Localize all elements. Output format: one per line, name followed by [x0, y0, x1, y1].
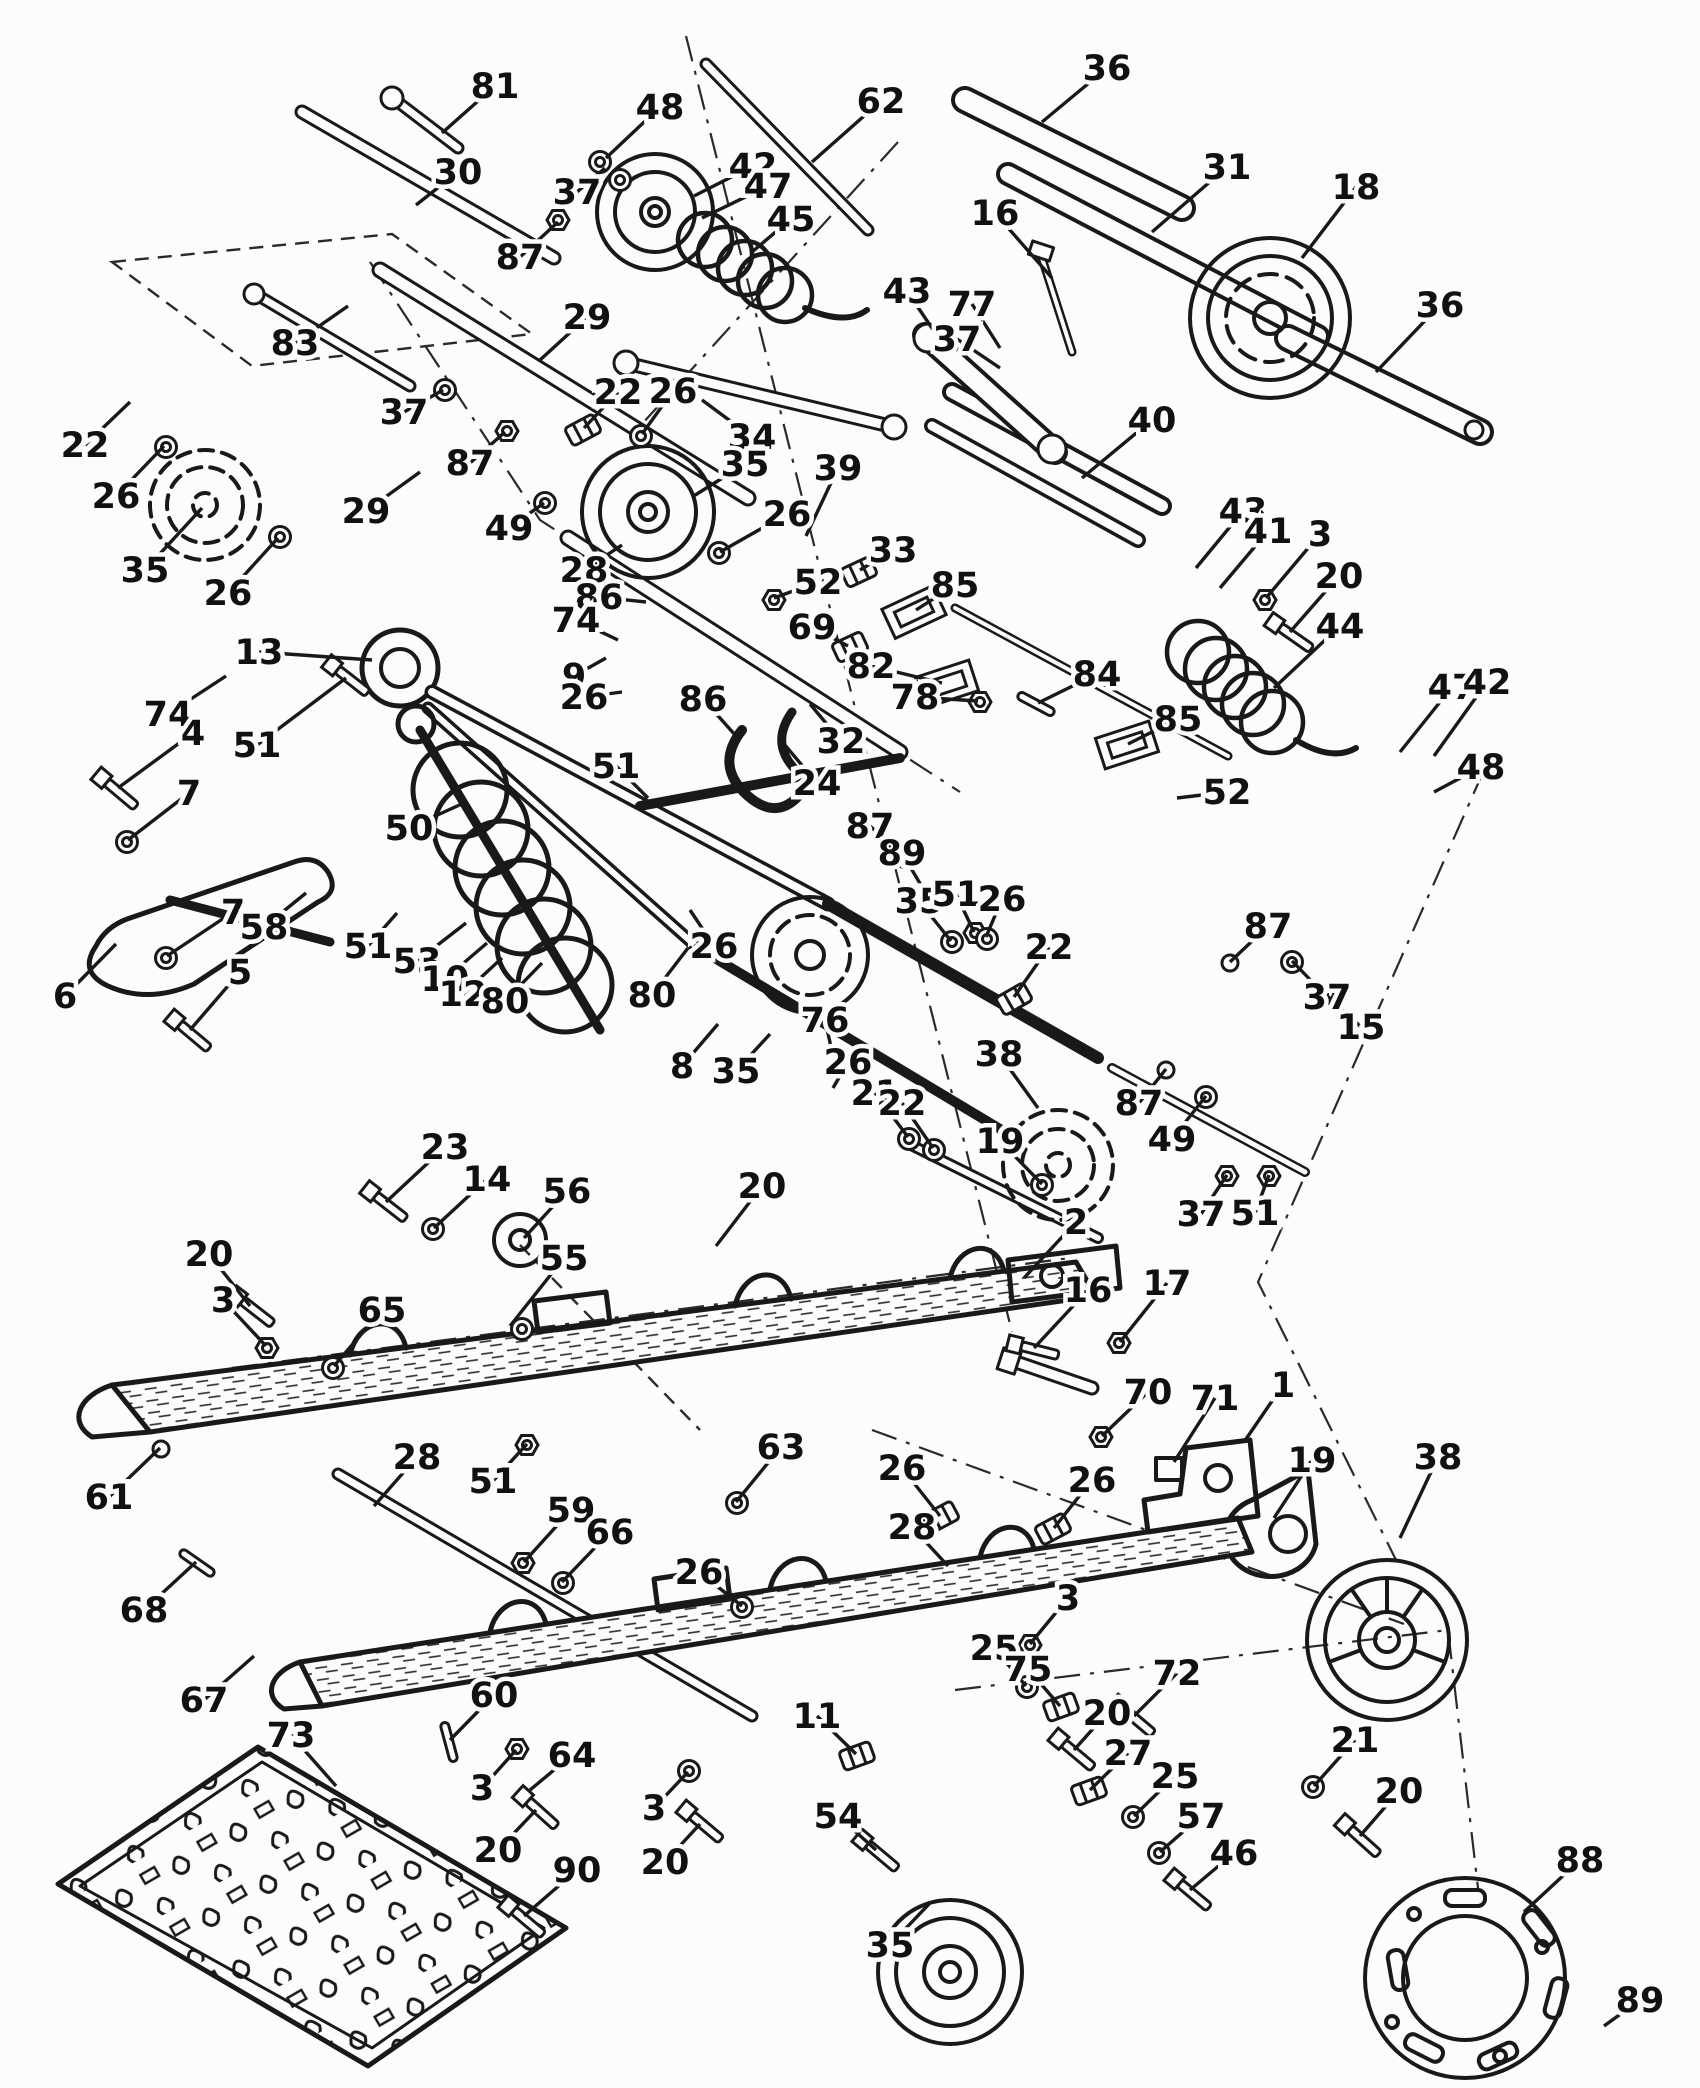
scanned-parts-page: 8148303742474562363118163643773787832940… [0, 0, 1700, 2088]
part-label-43: 43 [883, 272, 932, 312]
bushing-icon [564, 414, 602, 447]
part-label-45: 45 [767, 200, 816, 240]
part-label-26: 26 [649, 372, 698, 412]
part-label-76: 76 [801, 1001, 850, 1041]
part-label-37: 37 [553, 173, 602, 213]
part-label-19: 19 [976, 1122, 1025, 1162]
part-label-3: 3 [642, 1789, 666, 1829]
part-label-48: 48 [636, 88, 685, 128]
part-label-37: 37 [380, 393, 429, 433]
part-label-42: 42 [1463, 663, 1512, 703]
part-label-82: 82 [847, 647, 896, 687]
rod-83-icon [244, 284, 410, 386]
exploded-parts-diagram: 8148303742474562363118163643773787832940… [0, 0, 1700, 2088]
part-label-84: 84 [1073, 655, 1122, 695]
pin-icon [1016, 691, 1055, 717]
bottom-wheel-35-icon [878, 1900, 1022, 2044]
bolt-icon [91, 767, 141, 813]
part-label-11: 11 [793, 1697, 842, 1737]
washer-icon [156, 437, 177, 458]
part-label-89: 89 [878, 834, 927, 874]
part-label-54: 54 [814, 1797, 863, 1837]
part-label-51: 51 [932, 875, 981, 915]
washer-icon [631, 426, 652, 447]
part-label-44: 44 [1316, 607, 1365, 647]
part-label-35: 35 [721, 445, 770, 485]
part-label-35: 35 [121, 551, 170, 591]
part-label-38: 38 [975, 1035, 1024, 1075]
part-label-83: 83 [271, 324, 320, 364]
part-label-20: 20 [1083, 1694, 1132, 1734]
part-label-49: 49 [485, 509, 534, 549]
part-label-6: 6 [53, 977, 77, 1017]
part-label-88: 88 [1556, 1841, 1605, 1881]
part-label-28: 28 [393, 1438, 442, 1478]
part-label-20: 20 [1375, 1772, 1424, 1812]
part-label-55: 55 [540, 1239, 589, 1279]
part-label-26: 26 [1068, 1461, 1117, 1501]
wheel-parts [150, 154, 1569, 2078]
part-label-18: 18 [1332, 168, 1381, 208]
bearing-flange-88-icon [1365, 1878, 1569, 2078]
part-label-58: 58 [240, 908, 289, 948]
part-label-20: 20 [1315, 557, 1364, 597]
part-label-70: 70 [1124, 1373, 1173, 1413]
pin-icon [440, 1722, 458, 1763]
part-label-65: 65 [358, 1291, 407, 1331]
part-label-4: 4 [181, 714, 205, 754]
part-label-87: 87 [496, 238, 545, 278]
bushing-icon [1043, 1692, 1080, 1722]
part-label-90: 90 [553, 1851, 602, 1891]
part-label-26: 26 [763, 495, 812, 535]
part-label-26: 26 [675, 1553, 724, 1593]
part-label-37: 37 [933, 320, 982, 360]
part-label-21: 21 [1331, 1721, 1380, 1761]
part-label-67: 67 [180, 1681, 229, 1721]
part-label-14: 14 [463, 1160, 512, 1200]
part-label-69: 69 [788, 608, 837, 648]
tube-36-upper-icon [965, 100, 1182, 208]
part-label-39: 39 [814, 449, 863, 489]
tube-36-lower-icon [1288, 338, 1483, 439]
part-label-29: 29 [563, 298, 612, 338]
part-label-85: 85 [1154, 700, 1203, 740]
bolt-icon [1334, 1814, 1383, 1861]
nut-icon [256, 1339, 278, 1358]
idler-wheel-35-mid-icon [752, 897, 868, 1013]
rear-idler-38-icon [1307, 1560, 1467, 1720]
part-label-85: 85 [931, 566, 980, 606]
bolt-icon [1048, 1728, 1098, 1774]
washer-icon [924, 1140, 945, 1161]
part-label-52: 52 [794, 563, 843, 603]
part-label-20: 20 [641, 1843, 690, 1883]
part-label-22: 22 [1025, 928, 1074, 968]
part-label-49: 49 [1148, 1120, 1197, 1160]
bolt-icon [1264, 613, 1316, 656]
part-label-22: 22 [878, 1084, 927, 1124]
part-label-87: 87 [1115, 1084, 1164, 1124]
part-label-27: 27 [1104, 1734, 1153, 1774]
part-label-33: 33 [869, 531, 918, 571]
bolt-icon [164, 1009, 214, 1055]
part-label-24: 24 [793, 764, 842, 804]
part-label-19: 19 [1288, 1441, 1337, 1481]
nut-icon [1108, 1334, 1130, 1353]
bushing-icon [995, 982, 1033, 1015]
part-label-41: 41 [1244, 512, 1293, 552]
part-label-3: 3 [470, 1769, 494, 1809]
part-label-20: 20 [185, 1235, 234, 1275]
part-label-5: 5 [228, 953, 252, 993]
part-label-1: 1 [1271, 1366, 1295, 1406]
part-label-78: 78 [891, 678, 940, 718]
part-label-80: 80 [628, 976, 677, 1016]
part-label-62: 62 [857, 82, 906, 122]
part-label-3: 3 [1056, 1579, 1080, 1619]
part-label-31: 31 [1203, 148, 1252, 188]
part-label-37: 37 [1177, 1195, 1226, 1235]
part-label-16: 16 [971, 194, 1020, 234]
part-label-75: 75 [1004, 1650, 1053, 1690]
part-label-77: 77 [948, 285, 997, 325]
block-icon [1095, 721, 1158, 769]
part-label-20: 20 [474, 1831, 523, 1871]
part-label-86: 86 [679, 680, 728, 720]
part-label-46: 46 [1210, 1834, 1259, 1874]
part-label-40: 40 [1128, 401, 1177, 441]
part-label-66: 66 [586, 1513, 635, 1553]
bushing-icon [839, 1741, 876, 1771]
part-label-63: 63 [757, 1428, 806, 1468]
part-label-38: 38 [1414, 1438, 1463, 1478]
part-label-25: 25 [1151, 1757, 1200, 1797]
part-label-22: 22 [594, 373, 643, 413]
nut-icon [763, 591, 785, 610]
part-label-28: 28 [888, 1508, 937, 1548]
part-label-64: 64 [548, 1736, 597, 1776]
part-label-35: 35 [712, 1052, 761, 1092]
washer-icon [899, 1129, 920, 1150]
part-label-74: 74 [552, 601, 601, 641]
part-label-15: 15 [1337, 1008, 1386, 1048]
part-label-71: 71 [1191, 1379, 1240, 1419]
part-label-52: 52 [1203, 773, 1252, 813]
bolt-81-icon [381, 87, 458, 148]
ghost-wheel-35-left-icon [150, 450, 260, 560]
part-label-2: 2 [1064, 1203, 1088, 1243]
part-label-17: 17 [1143, 1264, 1192, 1304]
part-label-7: 7 [177, 774, 201, 814]
nut-icon [1254, 591, 1276, 610]
part-label-57: 57 [1177, 1797, 1226, 1837]
part-label-29: 29 [342, 492, 391, 532]
part-label-68: 68 [120, 1591, 169, 1631]
part-label-61: 61 [85, 1478, 134, 1518]
part-label-26: 26 [92, 477, 141, 517]
slide-rail-upper [79, 1246, 1120, 1437]
part-label-72: 72 [1153, 1654, 1202, 1694]
part-label-36: 36 [1083, 49, 1132, 89]
part-label-26: 26 [978, 880, 1027, 920]
part-label-51: 51 [469, 1462, 518, 1502]
part-label-73: 73 [267, 1716, 316, 1756]
washer-icon [610, 170, 631, 191]
part-label-30: 30 [434, 153, 483, 193]
part-label-26: 26 [560, 678, 609, 718]
part-label-51: 51 [1231, 1194, 1280, 1234]
part-label-50: 50 [385, 809, 434, 849]
part-label-13: 13 [235, 633, 284, 673]
bolt-icon [676, 1800, 726, 1846]
part-label-48: 48 [1457, 748, 1506, 788]
nut-icon [547, 211, 569, 230]
part-label-89: 89 [1616, 1981, 1665, 2021]
part-label-81: 81 [471, 67, 520, 107]
part-label-32: 32 [817, 722, 866, 762]
part-label-20: 20 [738, 1167, 787, 1207]
part-label-51: 51 [344, 927, 393, 967]
part-label-3: 3 [1308, 515, 1332, 555]
washer-icon [709, 543, 730, 564]
part-label-22: 22 [61, 426, 110, 466]
part-label-26: 26 [690, 927, 739, 967]
part-number-labels: 8148303742474562363118163643773787832940… [53, 49, 1665, 2021]
part-label-56: 56 [543, 1172, 592, 1212]
part-label-26: 26 [878, 1449, 927, 1489]
part-label-60: 60 [470, 1676, 519, 1716]
part-label-87: 87 [1244, 907, 1293, 947]
part-label-51: 51 [233, 726, 282, 766]
part-label-16: 16 [1064, 1271, 1113, 1311]
rod-30-icon [302, 112, 554, 258]
part-label-26: 26 [204, 574, 253, 614]
part-label-36: 36 [1416, 286, 1465, 326]
part-label-80: 80 [481, 982, 530, 1022]
bushing-icon [1034, 1513, 1072, 1546]
washer-icon [727, 1493, 748, 1514]
rocker-arm-icon [729, 712, 802, 808]
part-label-3: 3 [211, 1281, 235, 1321]
washer-icon [535, 493, 556, 514]
part-label-8: 8 [670, 1047, 694, 1087]
washer-icon [435, 380, 456, 401]
part-label-51: 51 [592, 747, 641, 787]
part-label-35: 35 [866, 1926, 915, 1966]
part-label-87: 87 [446, 444, 495, 484]
